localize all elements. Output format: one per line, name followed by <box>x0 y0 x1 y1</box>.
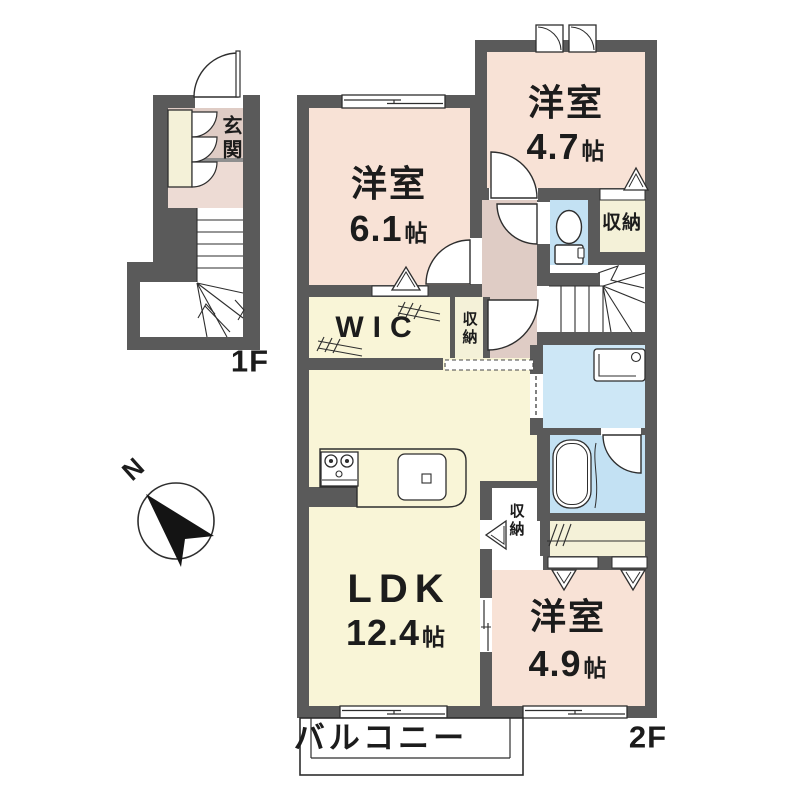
bedroom-b-name-label: 洋室 <box>528 85 604 121</box>
bedroom-b-size-unit: 帖 <box>582 140 606 163</box>
bedroom-c-size-label: 4.9帖 <box>528 646 607 682</box>
shoe-closet-doors-icon <box>192 112 217 187</box>
ldk-size-label: 12.4帖 <box>346 615 446 651</box>
bedroom-a-size-unit: 帖 <box>405 222 429 245</box>
wic-label: WIC <box>335 313 420 343</box>
bedroom-a-size-value: 6.1 <box>349 211 402 247</box>
storage-mid-label: 収納 <box>462 311 477 347</box>
bedroom-c-closet-floor <box>547 521 645 556</box>
storage-low-label: 収納 <box>509 503 524 539</box>
floorplan-drawing <box>0 0 800 800</box>
storage-top-label: 収納 <box>602 214 642 233</box>
ldk-size-unit: 帖 <box>422 626 446 649</box>
bedroom-b-size-value: 4.7 <box>526 129 579 165</box>
ldk-name-label: LDK <box>347 569 450 609</box>
compass-icon <box>138 483 214 567</box>
vanity-fixture-icon <box>594 349 645 381</box>
ldk-window-icon <box>340 706 447 718</box>
floor-1f-plan <box>127 51 260 350</box>
shoe-closet <box>168 110 192 187</box>
stairs-1f-floor <box>197 208 243 282</box>
bathtub-fixture-icon <box>553 440 597 508</box>
bedroom-c-size-value: 4.9 <box>528 646 581 682</box>
genkan-label: 玄関 <box>220 115 240 163</box>
sink-icon <box>398 454 446 500</box>
bedroom-c-floor <box>492 570 645 706</box>
washroom-sliding-door-icon <box>530 374 543 418</box>
floorplan-canvas: 洋室 6.1帖 洋室 4.7帖 洋室 4.9帖 LDK 12.4帖 WIC 収納… <box>0 0 800 800</box>
entry-door-icon <box>194 51 240 97</box>
bedroom-a-name-label: 洋室 <box>351 166 427 202</box>
bedroom-c-door-icon <box>480 598 492 652</box>
bedroom-a-size-label: 6.1帖 <box>349 211 428 247</box>
balcony-label: バルコニー <box>294 723 468 754</box>
stove-icon <box>321 452 358 486</box>
bedroom-c-window-icon <box>523 706 627 718</box>
ldk-size-value: 12.4 <box>346 615 420 651</box>
bedroom-b-size-label: 4.7帖 <box>526 129 605 165</box>
bedroom-a-window-icon <box>342 95 445 108</box>
floor-1f-label: 1F <box>231 346 269 377</box>
bedroom-c-name-label: 洋室 <box>530 599 606 635</box>
bedroom-c-size-unit: 帖 <box>584 657 608 680</box>
floor-2f-label: 2F <box>629 722 667 753</box>
counter-dashed-icon <box>445 360 533 370</box>
